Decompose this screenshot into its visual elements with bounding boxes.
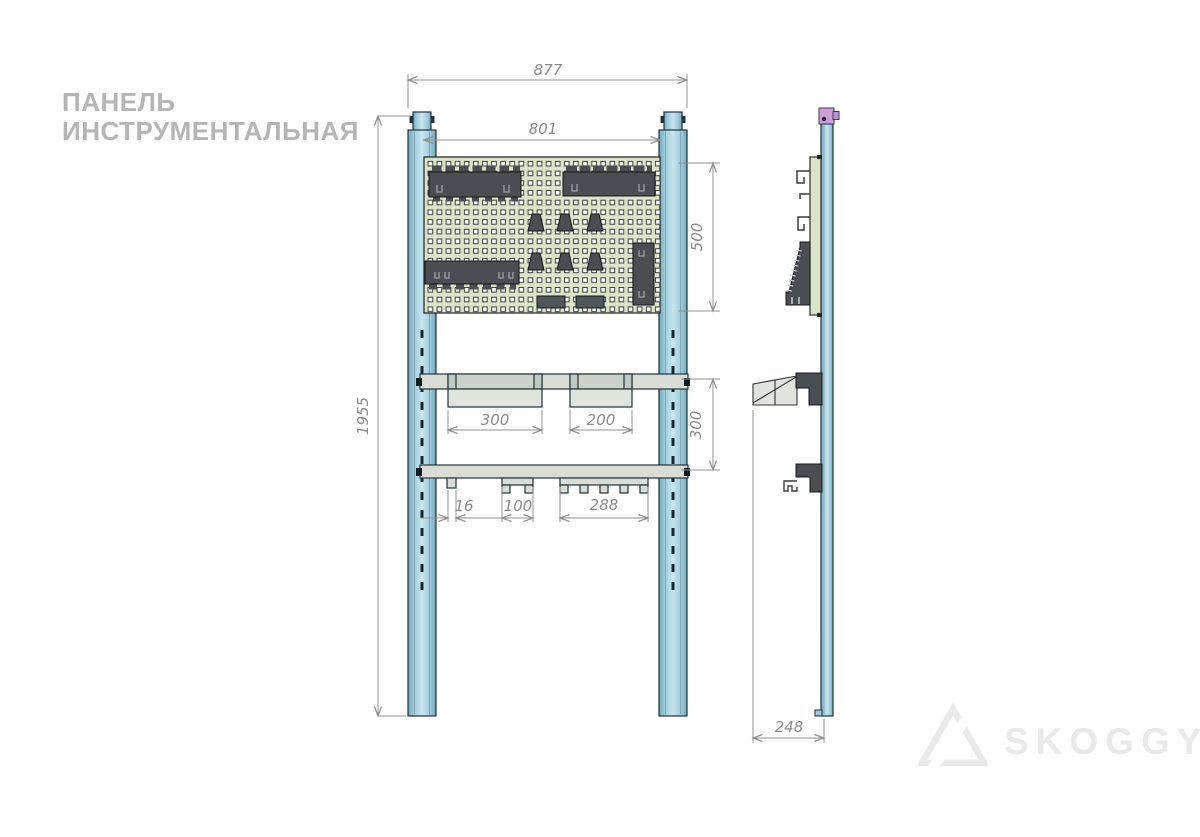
bin-small [570,374,632,407]
brand-name: SKOGGY [1004,721,1200,763]
hanger-small [447,478,456,488]
dim-248: 248 [775,718,804,736]
dim-16: 16 [454,497,473,515]
dim-300: 300 [481,411,510,429]
lower-rail [420,465,688,478]
brand-logo-triangle-icon [918,700,988,770]
side-bracket-lower [796,464,822,492]
rails-and-bins [416,374,690,493]
dim-801: 801 [529,120,558,138]
small-tray [576,296,604,308]
drawing-sheet: ПАНЕЛЬ ИНСТРУМЕНТАЛЬНАЯ [0,0,1200,837]
side-post [821,124,833,716]
right-post-cap [664,112,682,131]
dim-1955: 1955 [354,397,372,435]
dim-200: 200 [587,411,616,429]
side-dimensions [753,410,824,743]
dim-500: 500 [688,223,706,252]
side-view: 248 [753,108,839,743]
dim-877: 877 [534,61,563,79]
side-bracket-upper [796,373,822,405]
holder-top-left [429,172,521,197]
side-comb-holder [786,242,810,305]
bin-large [448,374,542,407]
left-post-cap [413,112,431,131]
side-bin [753,376,797,405]
side-panel-edge [810,157,821,315]
right-post [659,112,687,716]
small-tray [537,296,565,308]
side-post-foot [815,710,822,716]
side-post-cap [819,108,839,124]
hanger-wide [560,478,648,493]
brand-watermark: SKOGGY [918,700,1200,770]
front-view: 877 801 500 1955 300 200 300 16 100 288 [354,61,720,716]
dim-100: 100 [504,497,533,515]
dim-288: 288 [590,496,619,514]
hanger-medium [502,478,533,493]
side-hook-lower [784,481,797,491]
dim-300-vertical: 300 [687,411,705,440]
